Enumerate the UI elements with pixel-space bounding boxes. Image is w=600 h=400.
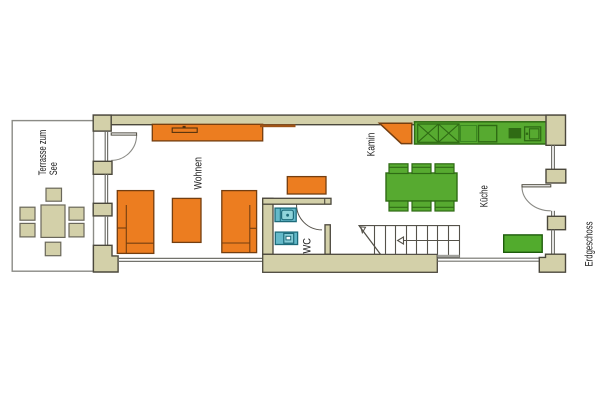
svg-text:Kamin: Kamin	[365, 133, 377, 157]
svg-text:Wohnen: Wohnen	[193, 157, 205, 190]
svg-text:See: See	[48, 162, 60, 175]
svg-text:Erdgeschoss: Erdgeschoss	[584, 221, 596, 266]
svg-text:WC: WC	[301, 238, 313, 254]
svg-text:Küche: Küche	[479, 185, 491, 207]
